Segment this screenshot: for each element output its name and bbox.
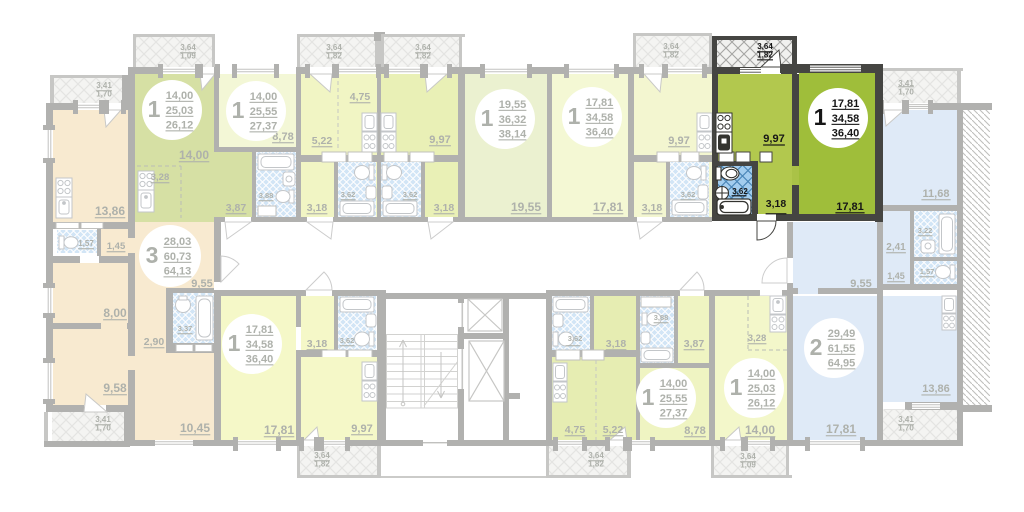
svg-text:26,12: 26,12	[748, 398, 776, 410]
svg-text:3,18: 3,18	[307, 338, 328, 350]
svg-text:17,81: 17,81	[593, 200, 623, 214]
svg-text:8,78: 8,78	[684, 425, 705, 437]
svg-text:29,49: 29,49	[828, 328, 856, 340]
svg-text:3,62: 3,62	[732, 187, 748, 196]
svg-text:28,03: 28,03	[164, 236, 192, 248]
svg-text:1,82: 1,82	[415, 52, 431, 61]
svg-text:9,97: 9,97	[429, 134, 450, 146]
svg-text:14,00: 14,00	[166, 90, 194, 102]
svg-text:17,81: 17,81	[836, 201, 864, 213]
svg-text:1,57: 1,57	[920, 267, 935, 276]
svg-text:26,12: 26,12	[166, 120, 194, 132]
svg-text:36,40: 36,40	[246, 354, 274, 366]
svg-text:25,55: 25,55	[660, 393, 688, 405]
svg-text:1: 1	[228, 330, 241, 356]
svg-text:1,82: 1,82	[588, 460, 604, 469]
svg-text:4,75: 4,75	[565, 424, 586, 436]
svg-text:19,55: 19,55	[499, 99, 527, 111]
svg-text:11,68: 11,68	[923, 188, 950, 200]
svg-text:1,82: 1,82	[757, 51, 773, 60]
svg-text:2,90: 2,90	[144, 336, 165, 348]
svg-text:1,70: 1,70	[96, 90, 112, 99]
svg-text:1: 1	[642, 384, 655, 410]
svg-text:1,09: 1,09	[740, 461, 756, 470]
svg-text:3,28: 3,28	[748, 333, 767, 344]
svg-text:34,58: 34,58	[832, 113, 860, 125]
svg-text:36,40: 36,40	[832, 128, 860, 140]
svg-text:3,88: 3,88	[259, 191, 274, 200]
svg-text:1: 1	[568, 103, 581, 129]
svg-text:5,22: 5,22	[312, 135, 333, 147]
svg-text:3,18: 3,18	[642, 202, 663, 214]
svg-text:27,37: 27,37	[660, 408, 688, 420]
svg-text:25,55: 25,55	[250, 106, 278, 118]
svg-text:9,97: 9,97	[763, 133, 784, 145]
svg-text:3,87: 3,87	[226, 202, 247, 214]
svg-text:25,03: 25,03	[166, 105, 194, 117]
svg-text:1: 1	[730, 374, 743, 400]
svg-text:34,58: 34,58	[586, 112, 614, 124]
svg-text:3,62: 3,62	[340, 336, 355, 345]
svg-text:1,57: 1,57	[78, 239, 94, 248]
svg-text:34,58: 34,58	[246, 339, 274, 351]
svg-text:9,97: 9,97	[351, 423, 372, 435]
svg-text:3,62: 3,62	[568, 334, 583, 343]
svg-text:14,00: 14,00	[745, 423, 775, 437]
svg-text:3,62: 3,62	[341, 190, 356, 199]
svg-text:14,00: 14,00	[179, 148, 209, 162]
svg-text:9,55: 9,55	[191, 278, 212, 290]
svg-text:3,87: 3,87	[684, 338, 705, 350]
svg-text:9,55: 9,55	[850, 278, 871, 290]
svg-text:3,18: 3,18	[307, 202, 328, 214]
svg-text:8,00: 8,00	[103, 306, 127, 320]
svg-text:13,86: 13,86	[95, 204, 125, 218]
svg-text:1: 1	[481, 105, 494, 131]
svg-text:10,45: 10,45	[180, 421, 210, 435]
svg-text:61,55: 61,55	[828, 343, 856, 355]
svg-text:3,18: 3,18	[606, 338, 627, 350]
svg-text:64,95: 64,95	[828, 358, 856, 370]
svg-text:36,32: 36,32	[499, 114, 527, 126]
svg-text:3,18: 3,18	[766, 198, 787, 210]
svg-text:17,81: 17,81	[246, 324, 274, 336]
svg-text:17,81: 17,81	[826, 422, 856, 436]
svg-text:2,41: 2,41	[886, 242, 906, 253]
svg-text:14,00: 14,00	[250, 91, 278, 103]
svg-text:9,97: 9,97	[668, 135, 689, 147]
svg-text:1: 1	[814, 104, 827, 130]
svg-text:3,62: 3,62	[681, 190, 696, 199]
svg-text:9,58: 9,58	[103, 381, 127, 395]
svg-text:17,81: 17,81	[264, 423, 294, 437]
svg-text:19,55: 19,55	[511, 200, 541, 214]
svg-text:1,82: 1,82	[314, 460, 330, 469]
svg-text:17,81: 17,81	[832, 98, 860, 110]
svg-text:27,37: 27,37	[250, 121, 278, 133]
svg-text:3,28: 3,28	[151, 172, 170, 183]
svg-text:3,22: 3,22	[918, 226, 933, 235]
svg-text:3,62: 3,62	[403, 190, 418, 199]
svg-text:1,70: 1,70	[95, 424, 111, 433]
svg-text:25,03: 25,03	[748, 383, 776, 395]
svg-text:3,88: 3,88	[654, 313, 669, 322]
svg-text:5,22: 5,22	[603, 424, 624, 436]
svg-text:1,45: 1,45	[107, 241, 126, 252]
svg-text:2: 2	[810, 334, 823, 360]
svg-text:3: 3	[146, 242, 159, 268]
svg-text:17,81: 17,81	[586, 97, 614, 109]
svg-text:3,37: 3,37	[178, 324, 193, 333]
svg-text:1,70: 1,70	[898, 424, 914, 433]
svg-text:14,00: 14,00	[660, 378, 688, 390]
svg-text:1,82: 1,82	[326, 52, 342, 61]
svg-text:1,09: 1,09	[180, 52, 196, 61]
svg-text:1: 1	[148, 96, 161, 122]
svg-text:1,45: 1,45	[887, 271, 905, 281]
svg-text:3,18: 3,18	[434, 202, 455, 214]
svg-text:4,75: 4,75	[350, 91, 371, 103]
svg-text:60,73: 60,73	[164, 251, 192, 263]
svg-text:1: 1	[232, 97, 245, 123]
svg-text:1,70: 1,70	[898, 88, 914, 97]
svg-text:64,13: 64,13	[164, 266, 192, 278]
svg-text:38,14: 38,14	[499, 129, 527, 141]
svg-text:1,82: 1,82	[663, 51, 679, 60]
svg-text:13,86: 13,86	[922, 383, 950, 395]
svg-text:14,00: 14,00	[748, 368, 776, 380]
svg-text:36,40: 36,40	[586, 127, 614, 139]
